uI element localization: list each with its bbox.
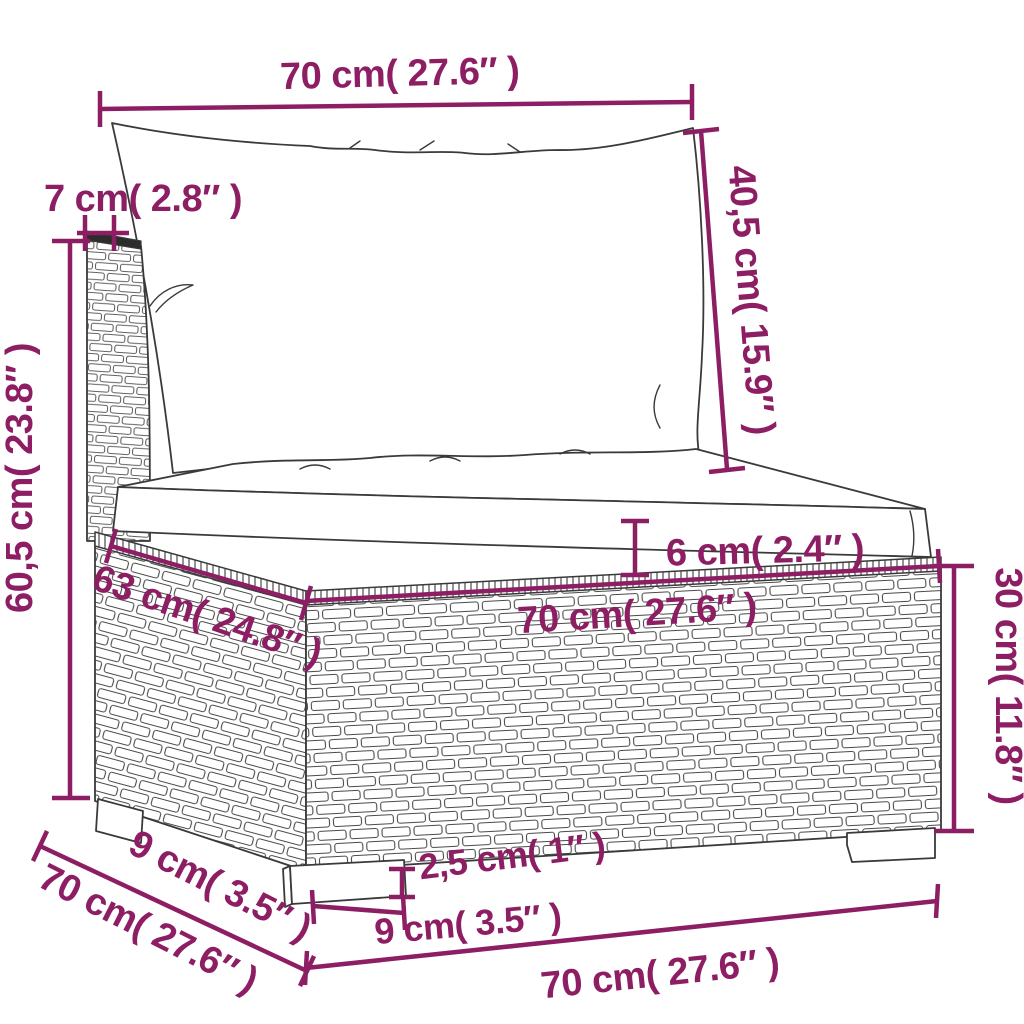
label-back-thickness: 7 cm( 2.8″ )	[44, 178, 242, 220]
label-base-height: 30 cm( 11.8″ )	[987, 567, 1024, 804]
sofa-dimension-diagram: 70 cm( 27.6″ ) 7 cm( 2.8″ ) 40,5 cm( 15.…	[0, 0, 1024, 1024]
back-cushion-drawing	[112, 123, 703, 473]
label-overall-width: 70 cm( 27.6″ )	[539, 941, 781, 1008]
dim-overall-height	[52, 241, 90, 798]
diagram-canvas: 70 cm( 27.6″ ) 7 cm( 2.8″ ) 40,5 cm( 15.…	[0, 0, 1024, 1024]
label-back-cushion-height: 40,5 cm( 15.9″ )	[719, 164, 782, 436]
label-overall-height: 60,5 cm( 23.8″ )	[0, 343, 41, 613]
label-top-width: 70 cm( 27.6″ )	[280, 50, 520, 98]
label-cushion-thickness: 6 cm( 2.4″ )	[665, 527, 864, 574]
